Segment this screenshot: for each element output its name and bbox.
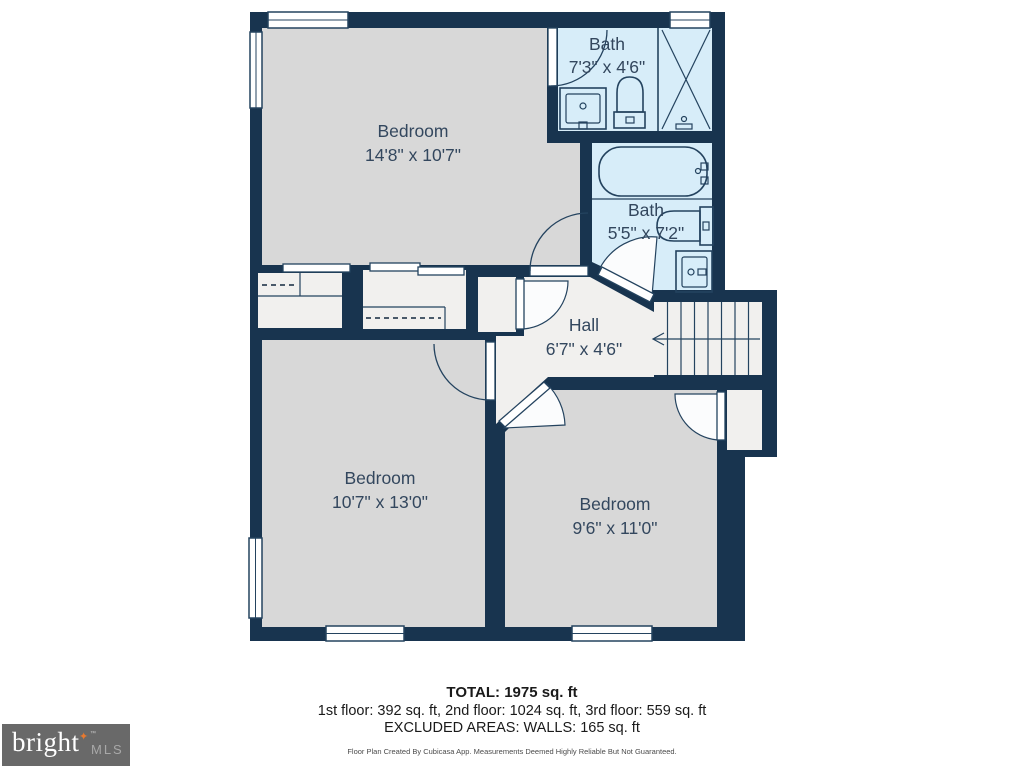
room-name: Bedroom — [344, 468, 415, 488]
bright-mls-logo: bright ✦ ™ MLS — [2, 724, 130, 766]
sliding-door — [370, 263, 420, 271]
disclaimer-text: Floor Plan Created By Cubicasa App. Meas… — [0, 747, 1024, 756]
room-name: Bedroom — [377, 121, 448, 141]
closet-middle — [363, 270, 466, 329]
logo-star-icon: ✦ — [79, 730, 88, 743]
window — [670, 12, 710, 28]
sliding-door — [283, 264, 350, 272]
door-leaf — [548, 28, 557, 86]
door-leaf — [717, 392, 725, 440]
window — [250, 32, 262, 108]
logo-suffix-text: MLS — [91, 742, 124, 757]
floor-plan-drawing: Bedroom 14'8" x 10'7" Bath 7'3" x 4'6" B… — [0, 0, 1024, 768]
door-leaf — [530, 266, 588, 276]
logo-brand-text: bright — [12, 727, 80, 758]
area-summary: TOTAL: 1975 sq. ft 1st floor: 392 sq. ft… — [0, 684, 1024, 756]
room-dims: 6'7" x 4'6" — [546, 339, 623, 359]
room-name: Hall — [569, 315, 599, 335]
window — [249, 538, 262, 618]
window — [268, 12, 348, 28]
window — [326, 626, 404, 641]
window — [572, 626, 652, 641]
floor-areas-text: 1st floor: 392 sq. ft, 2nd floor: 1024 s… — [0, 703, 1024, 719]
excluded-areas-text: EXCLUDED AREAS: WALLS: 165 sq. ft — [0, 720, 1024, 736]
room-dims: 9'6" x 11'0" — [573, 518, 658, 538]
sliding-door — [418, 267, 464, 275]
room-dims: 5'5" x 7'2" — [608, 223, 685, 243]
room-dims: 14'8" x 10'7" — [365, 145, 461, 165]
logo-trademark: ™ — [90, 731, 96, 737]
closet-bottom-right — [727, 390, 762, 450]
door-leaf — [486, 342, 495, 400]
door-leaf — [516, 279, 524, 329]
room-dims: 10'7" x 13'0" — [332, 492, 428, 512]
room-name: Bath — [589, 34, 625, 54]
floor-plan-page: Bedroom 14'8" x 10'7" Bath 7'3" x 4'6" B… — [0, 0, 1024, 768]
closet-hall — [478, 277, 516, 332]
room-bath-top — [558, 28, 712, 131]
total-area-text: TOTAL: 1975 sq. ft — [0, 684, 1024, 701]
room-name: Bath — [628, 200, 664, 220]
room-name: Bedroom — [579, 494, 650, 514]
room-dims: 7'3" x 4'6" — [569, 57, 646, 77]
